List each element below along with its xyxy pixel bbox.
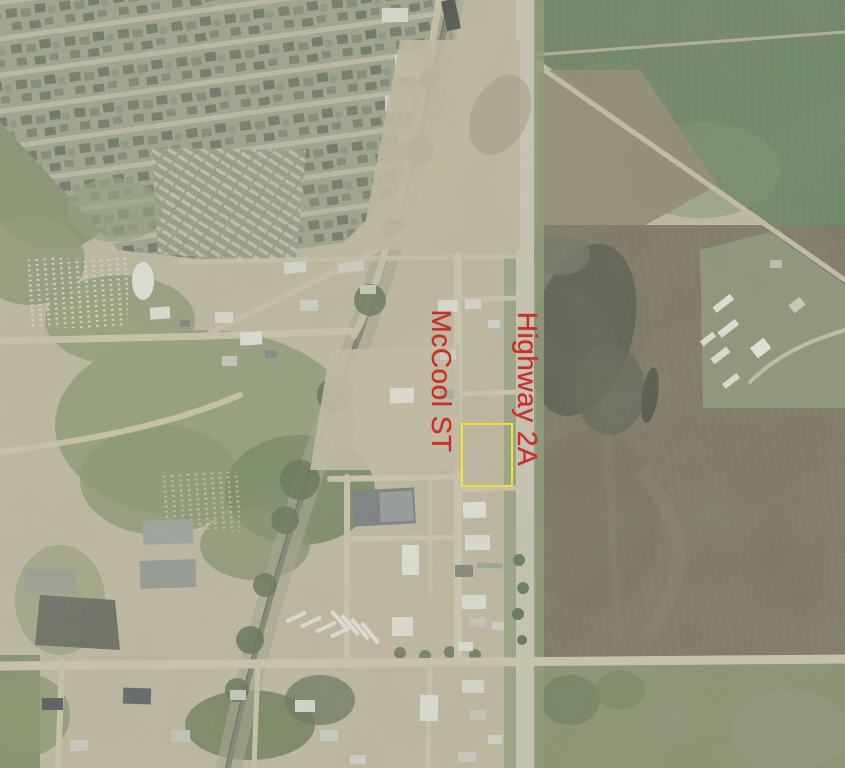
aerial-photo-art xyxy=(0,0,845,768)
aerial-map: McCool ST Highway 2A xyxy=(0,0,845,768)
street-label: McCool ST xyxy=(425,310,457,453)
parcel-highlight-box xyxy=(461,423,513,487)
film-grain-overlay xyxy=(0,0,845,768)
highway-label: Highway 2A xyxy=(511,312,543,466)
